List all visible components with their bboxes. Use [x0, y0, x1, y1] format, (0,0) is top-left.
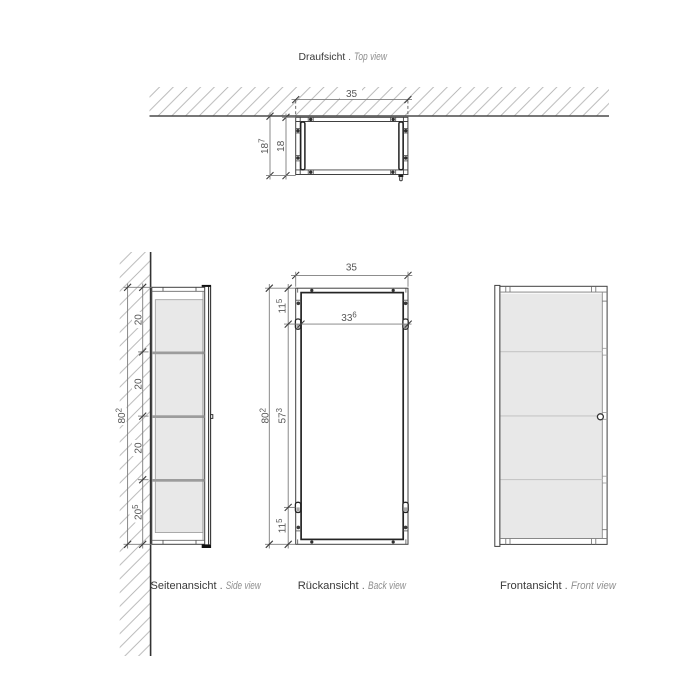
svg-text:20: 20 [134, 378, 145, 390]
svg-text:18: 18 [276, 140, 287, 152]
svg-text:Frontansicht . Front view: Frontansicht . Front view [500, 580, 617, 592]
svg-text:35: 35 [346, 263, 358, 274]
svg-text:20: 20 [134, 442, 145, 454]
svg-text:Draufsicht . Top view: Draufsicht . Top view [299, 51, 388, 63]
svg-text:Rückansicht . Back view: Rückansicht . Back view [298, 580, 407, 592]
svg-text:20: 20 [134, 314, 145, 326]
svg-text:Seitenansicht . Side view: Seitenansicht . Side view [151, 580, 262, 592]
svg-text:35: 35 [346, 89, 358, 100]
